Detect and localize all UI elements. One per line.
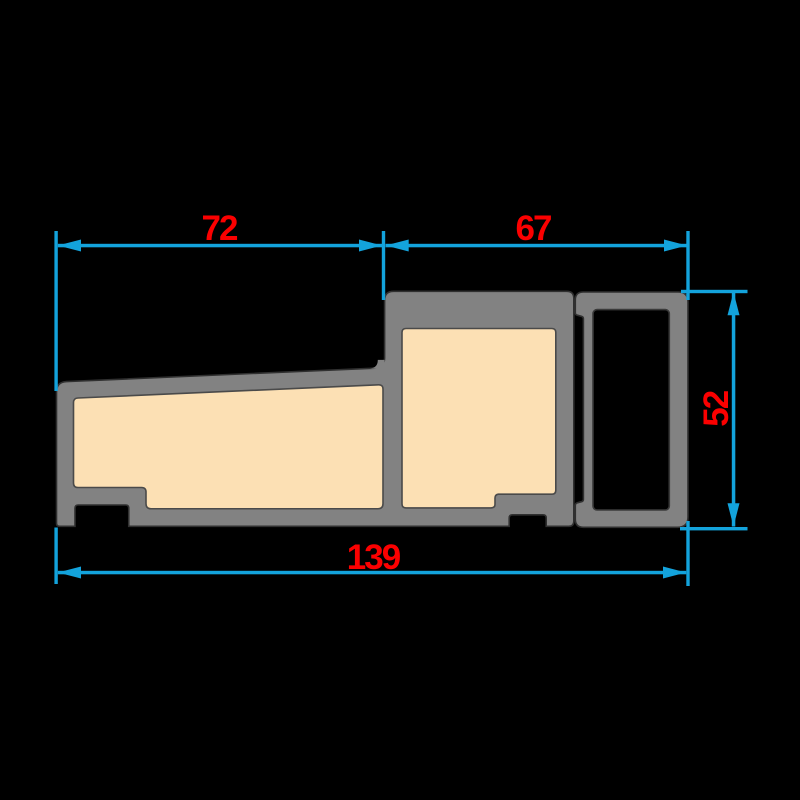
svg-text:52: 52 — [697, 390, 736, 426]
svg-text:72: 72 — [202, 209, 238, 248]
svg-text:67: 67 — [516, 209, 551, 248]
svg-text:139: 139 — [347, 538, 401, 577]
